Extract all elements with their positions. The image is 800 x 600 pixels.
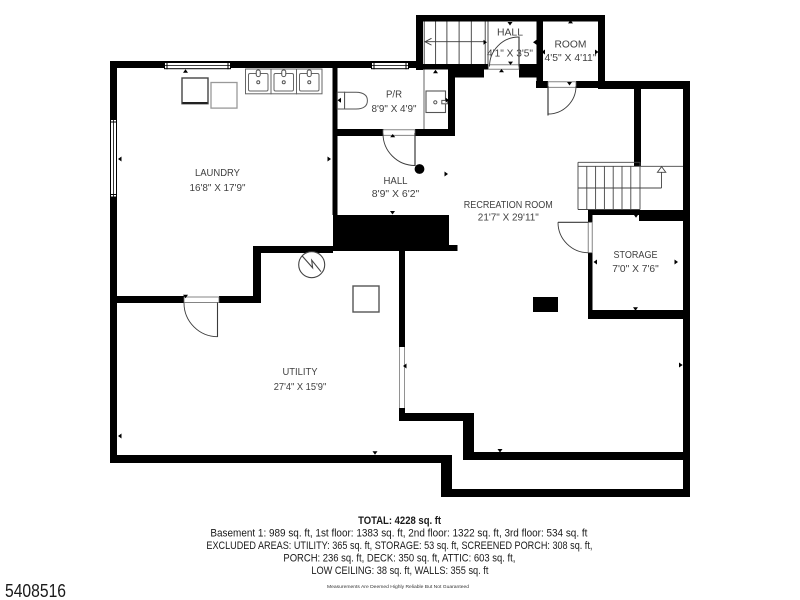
svg-text:EXCLUDED AREAS: UTILITY: 365 s: EXCLUDED AREAS: UTILITY: 365 sq. ft, STO… <box>206 540 592 552</box>
svg-text:8'9" X 6'2": 8'9" X 6'2" <box>372 189 420 200</box>
svg-text:HALL: HALL <box>497 28 523 39</box>
svg-text:21'7" X 29'11": 21'7" X 29'11" <box>478 213 539 224</box>
svg-text:27'4" X 15'9": 27'4" X 15'9" <box>274 382 327 393</box>
svg-text:TOTAL: 4228 sq. ft: TOTAL: 4228 sq. ft <box>358 515 441 527</box>
svg-text:Measurements Are Deemed Highly: Measurements Are Deemed Highly Reliable … <box>327 584 469 590</box>
svg-text:LAUNDRY: LAUNDRY <box>195 168 240 179</box>
svg-text:5408516: 5408516 <box>5 580 66 600</box>
svg-text:4'5" X 4'11": 4'5" X 4'11" <box>545 53 597 64</box>
svg-text:16'8" X 17'9": 16'8" X 17'9" <box>190 183 246 194</box>
svg-text:STORAGE: STORAGE <box>614 250 658 261</box>
svg-text:4'1" X 3'5": 4'1" X 3'5" <box>487 49 533 60</box>
svg-text:LOW CEILING: 38 sq. ft, WALLS:: LOW CEILING: 38 sq. ft, WALLS: 355 sq. f… <box>311 565 488 577</box>
svg-text:7'0" X 7'6": 7'0" X 7'6" <box>612 264 659 275</box>
svg-text:8'9" X 4'9": 8'9" X 4'9" <box>372 104 417 115</box>
svg-text:UTILITY: UTILITY <box>283 367 318 378</box>
svg-text:PORCH: 236 sq. ft, DECK: 350 s: PORCH: 236 sq. ft, DECK: 350 sq. ft, ATT… <box>283 553 515 565</box>
svg-text:P/R: P/R <box>386 90 402 101</box>
svg-text:ROOM: ROOM <box>555 39 587 50</box>
svg-text:RECREATION ROOM: RECREATION ROOM <box>464 200 553 211</box>
svg-text:Basement 1: 989 sq. ft, 1st fl: Basement 1: 989 sq. ft, 1st floor: 1383 … <box>210 528 587 540</box>
svg-text:HALL: HALL <box>384 176 408 187</box>
